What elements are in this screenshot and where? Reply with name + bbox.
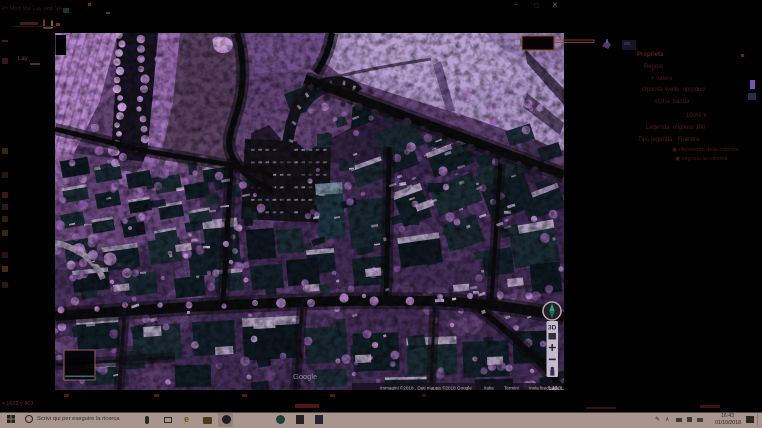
svg-text:Termini: Termini (504, 386, 519, 391)
svg-text:Immagini ©2018 , Dati mappa ©2: Immagini ©2018 , Dati mappa ©2018 Google (380, 385, 472, 391)
svg-text:3D: 3D (548, 325, 557, 332)
svg-text:10 m: 10 m (552, 385, 562, 390)
svg-text:Google: Google (293, 372, 317, 381)
svg-text:Italia: Italia (484, 386, 494, 391)
